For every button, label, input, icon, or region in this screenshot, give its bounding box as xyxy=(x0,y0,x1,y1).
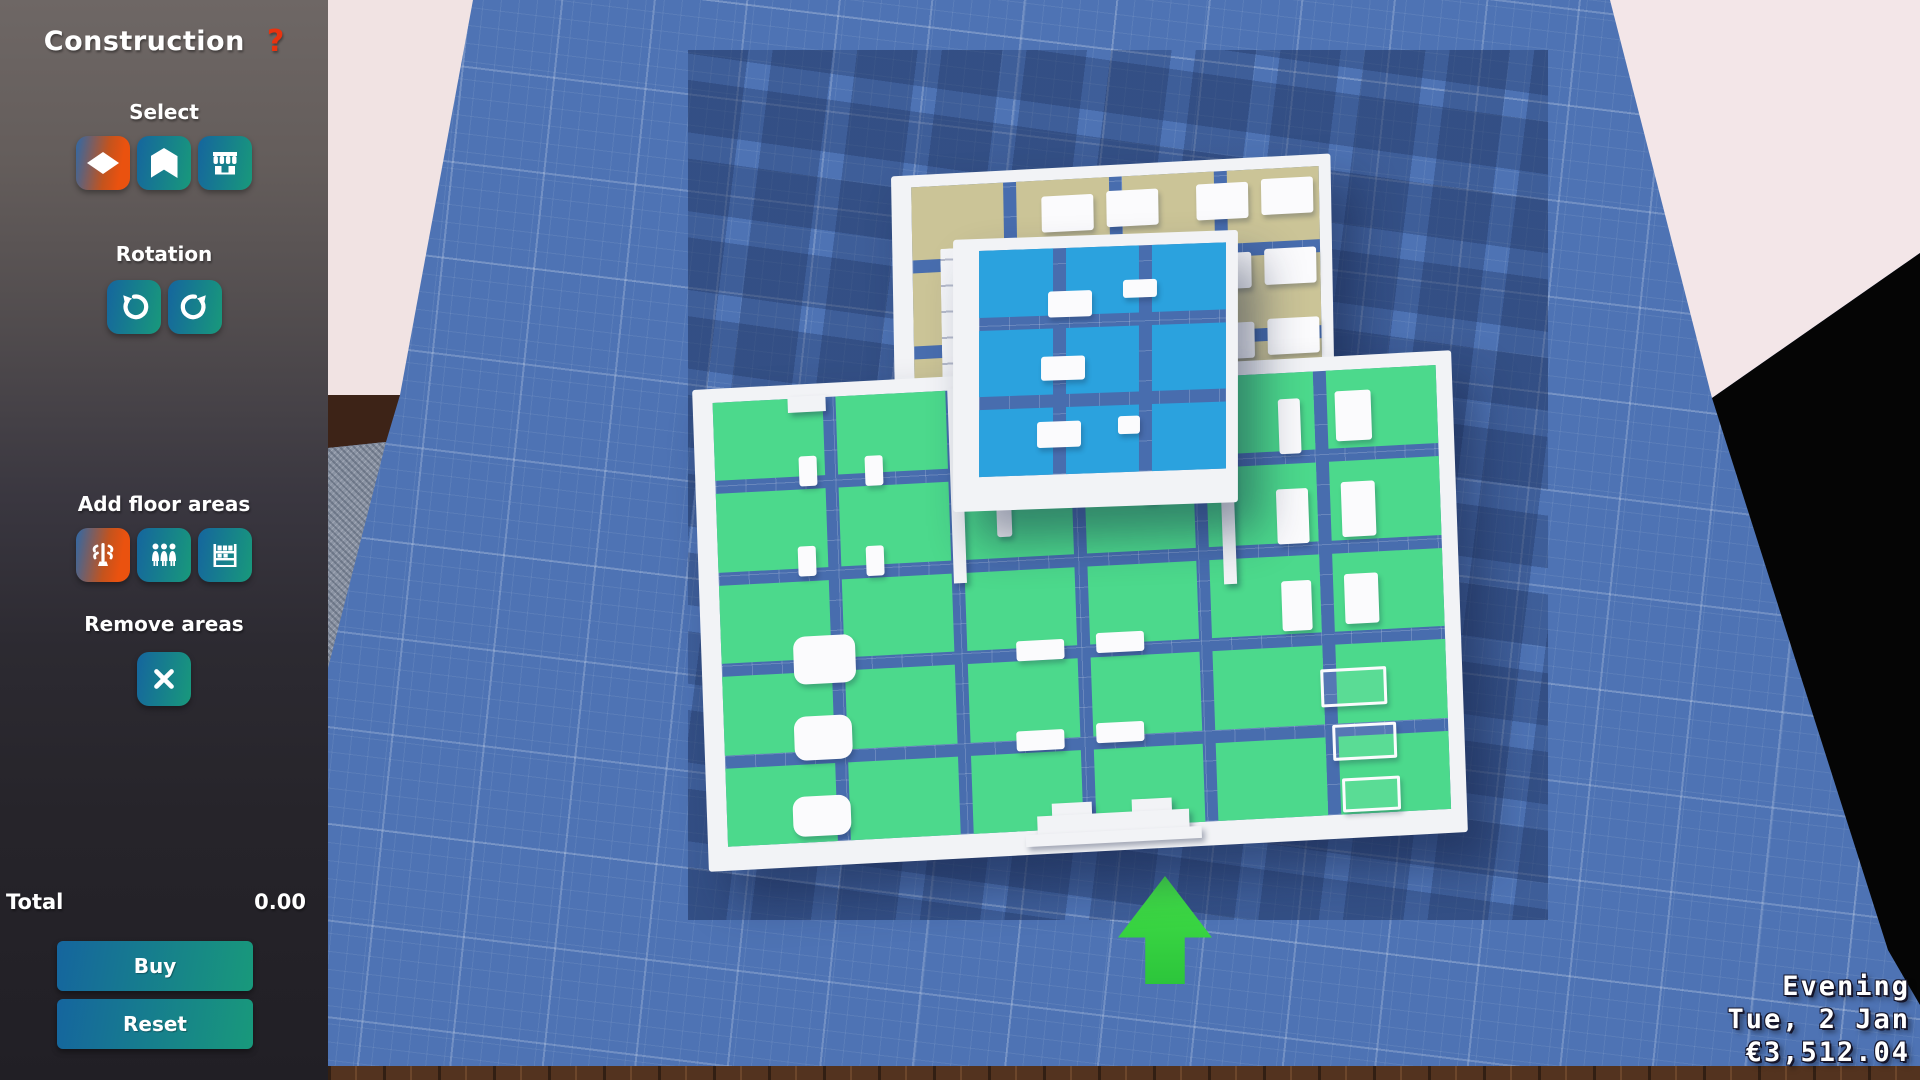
floor-area-blue[interactable] xyxy=(979,242,1226,477)
furniture-shelf xyxy=(1281,580,1313,632)
total-value: 0.00 xyxy=(254,890,306,914)
furniture-shelf xyxy=(1334,389,1372,441)
storefront-icon xyxy=(209,147,241,179)
rotate-cw-icon xyxy=(180,292,210,322)
furniture-fridge xyxy=(1320,666,1387,707)
furniture-register xyxy=(793,634,857,685)
walls-icon xyxy=(151,148,178,178)
furniture-shelf xyxy=(1276,488,1310,545)
furniture-fridge xyxy=(1332,722,1397,761)
furniture-shelf xyxy=(1264,246,1317,285)
floor-tile[interactable] xyxy=(1152,402,1226,471)
furniture-shelf xyxy=(1267,316,1320,355)
floor-tile[interactable] xyxy=(979,248,1053,317)
floor-tile[interactable] xyxy=(1216,737,1328,821)
select-walls-button[interactable] xyxy=(137,136,191,190)
total-label: Total xyxy=(6,890,63,914)
wood-floor-strip xyxy=(328,1066,1920,1080)
floor-tile[interactable] xyxy=(835,391,947,475)
scene-viewport[interactable]: Evening Tue, 2 Jan €3,512.04 xyxy=(328,0,1920,1080)
hud-date: Tue, 2 Jan xyxy=(1727,1004,1910,1037)
floor-tile[interactable] xyxy=(1213,646,1325,730)
furniture-fridge xyxy=(1342,775,1401,812)
select-section-label: Select xyxy=(0,100,328,124)
furniture-table xyxy=(1118,415,1140,434)
floor-tile[interactable] xyxy=(848,756,960,840)
furniture-bench xyxy=(1016,729,1065,752)
furniture-chair xyxy=(798,456,817,487)
add-area-coatrack-button[interactable] xyxy=(76,528,130,582)
select-floor-button[interactable] xyxy=(76,136,130,190)
furniture-table xyxy=(1041,355,1085,381)
help-icon[interactable]: ? xyxy=(267,24,284,59)
furniture-shelf xyxy=(1196,182,1249,221)
rotate-ccw-button[interactable] xyxy=(107,280,161,334)
diamond-icon xyxy=(87,152,119,174)
furniture-chair xyxy=(864,455,883,486)
shelf-rack-icon xyxy=(209,539,241,571)
furniture-chair xyxy=(866,545,885,576)
floor-tile[interactable] xyxy=(838,482,950,566)
reset-button[interactable]: Reset xyxy=(57,999,253,1049)
rotation-section-label: Rotation xyxy=(0,242,328,266)
furniture-shelf xyxy=(1261,176,1314,215)
hud-status: Evening Tue, 2 Jan €3,512.04 xyxy=(1727,971,1910,1070)
floor-tile[interactable] xyxy=(1152,322,1226,391)
construction-panel: Construction ? Select Rotation xyxy=(0,0,328,1080)
door-jamb xyxy=(787,395,826,413)
furniture-table xyxy=(1037,421,1081,449)
hud-time-of-day: Evening xyxy=(1727,971,1910,1004)
buy-button[interactable]: Buy xyxy=(57,941,253,991)
furniture-bench xyxy=(1096,631,1145,654)
remove-area-button[interactable] xyxy=(137,652,191,706)
furniture-register xyxy=(792,794,851,837)
coat-rack-icon xyxy=(87,539,119,571)
furniture-bench xyxy=(1096,721,1145,744)
furniture-chair xyxy=(798,546,817,577)
hud-money: €3,512.04 xyxy=(1727,1037,1910,1070)
add-area-storage-button[interactable] xyxy=(198,528,252,582)
people-icon xyxy=(148,539,180,571)
panel-title: Construction xyxy=(44,26,245,57)
furniture-bench xyxy=(1016,639,1065,662)
floor-tile[interactable] xyxy=(1152,242,1226,311)
add-floor-areas-label: Add floor areas xyxy=(0,492,328,516)
select-store-button[interactable] xyxy=(198,136,252,190)
furniture-register xyxy=(794,714,853,761)
x-icon xyxy=(149,664,179,694)
add-area-customers-button[interactable] xyxy=(137,528,191,582)
remove-areas-label: Remove areas xyxy=(0,612,328,636)
floor-tile[interactable] xyxy=(845,665,957,749)
floor-tile[interactable] xyxy=(842,573,954,657)
furniture-shelf xyxy=(1341,480,1377,537)
furniture-shelf xyxy=(1344,572,1380,624)
furniture-table xyxy=(1123,279,1157,298)
furniture-shelf xyxy=(1106,188,1159,227)
furniture-table xyxy=(1048,290,1092,318)
room-office xyxy=(953,230,1238,512)
rotate-cw-button[interactable] xyxy=(168,280,222,334)
rotate-ccw-icon xyxy=(119,292,149,322)
furniture-shelf xyxy=(1041,194,1094,233)
furniture-shelf xyxy=(1278,398,1302,454)
